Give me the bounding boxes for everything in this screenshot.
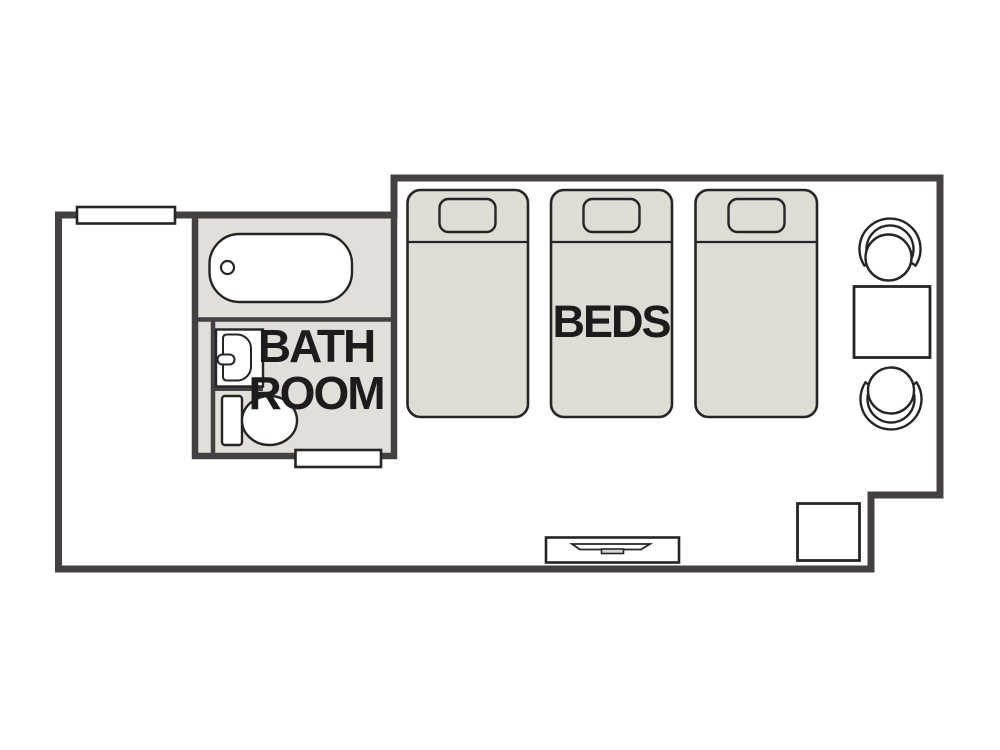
- bed-mattress: [408, 190, 529, 417]
- floor-plan-drawing: [0, 0, 1000, 750]
- cabinet-icon: [798, 504, 860, 561]
- chair-top: [860, 219, 921, 281]
- floor-plan: BATH ROOM BEDS: [0, 0, 1000, 750]
- beds-label: BEDS: [549, 300, 673, 344]
- tv-stand-base-icon: [602, 549, 624, 554]
- tv-console: [546, 538, 679, 563]
- bathroom-label-line1: BATH: [228, 323, 404, 370]
- chair-bottom: [860, 368, 921, 430]
- bed-1: [408, 190, 529, 417]
- bathtub-drain-icon: [221, 261, 234, 274]
- bed-3: [696, 190, 818, 417]
- bed-mattress: [696, 190, 818, 417]
- bathroom-label-line2: ROOM: [228, 370, 404, 417]
- table-icon: [854, 287, 930, 358]
- bathroom-label: BATH ROOM: [228, 323, 404, 417]
- window-icon: [77, 207, 175, 224]
- chair-seat-icon: [868, 368, 914, 414]
- bathroom-door-icon: [296, 450, 382, 467]
- chair-seat-icon: [866, 235, 912, 281]
